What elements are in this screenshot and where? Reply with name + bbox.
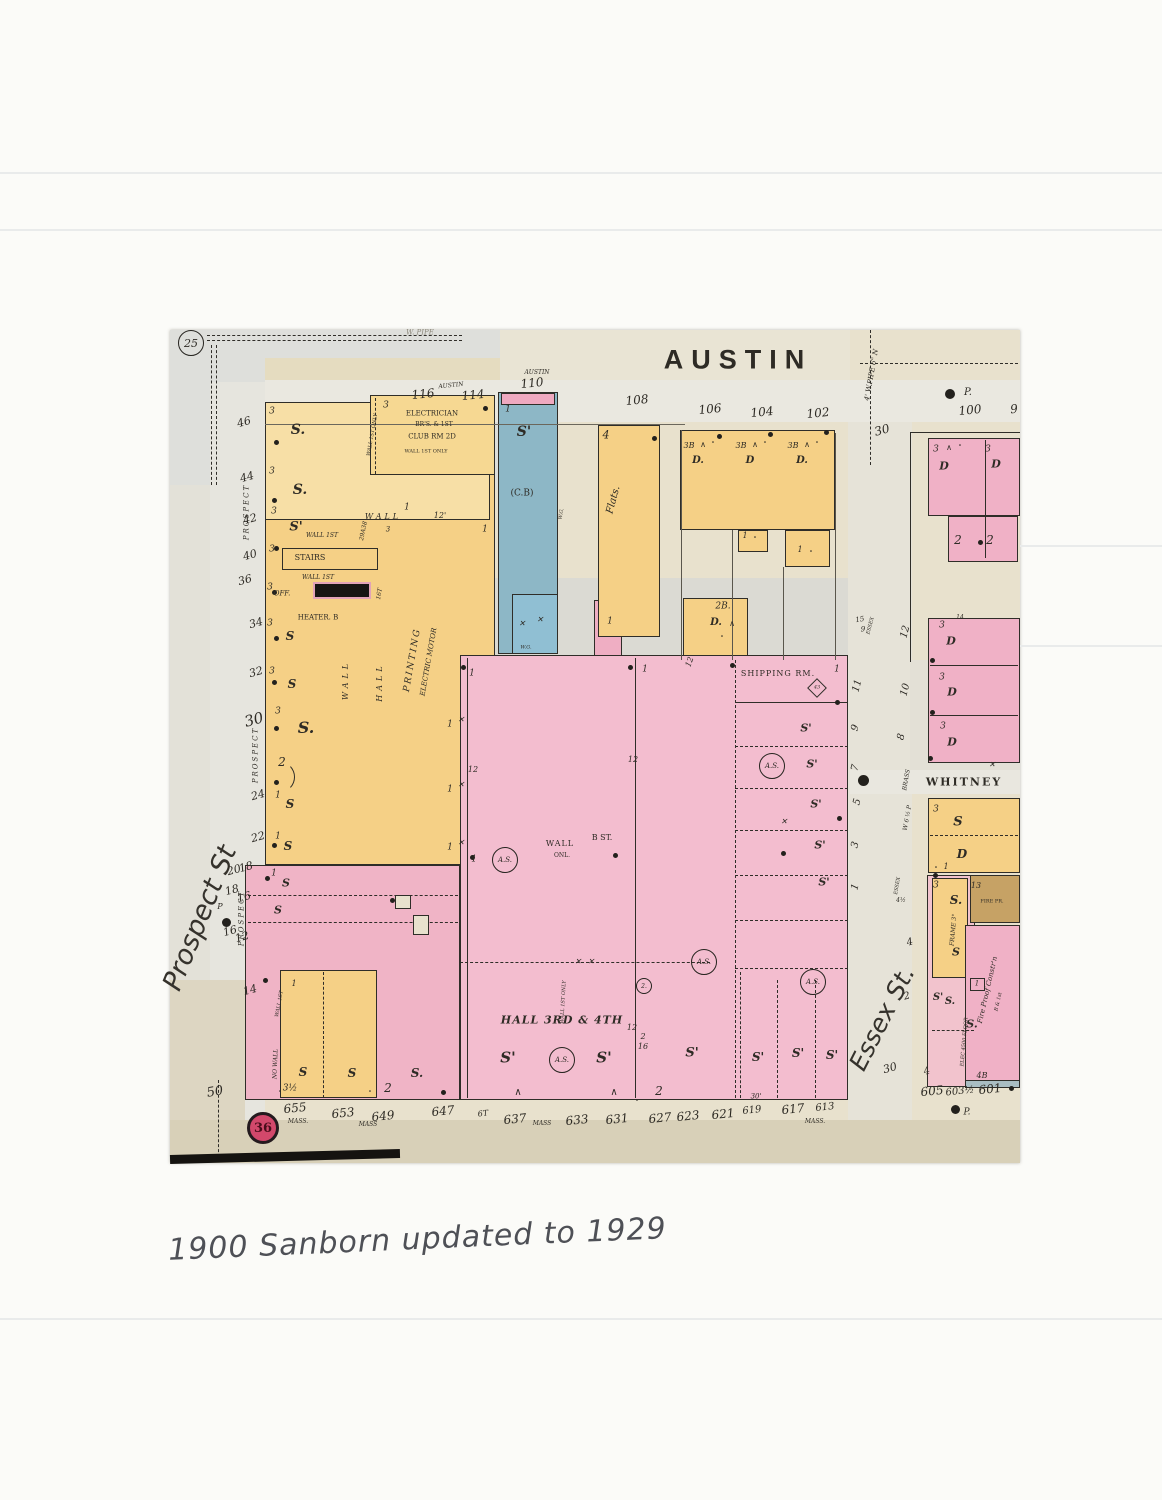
map-label: S. xyxy=(411,1067,423,1079)
map-label: 2 xyxy=(954,534,962,546)
map-label: ∘ xyxy=(959,443,962,449)
map-label: 3 xyxy=(939,674,945,683)
map-label: ∘ xyxy=(369,1089,372,1095)
map-label: 3 xyxy=(939,622,945,631)
map-label: 14 xyxy=(956,615,964,621)
scan-artifact-line xyxy=(1020,545,1162,547)
map-label: 43 xyxy=(814,686,820,691)
map-label: ∧ xyxy=(514,1088,521,1098)
map-label: 3B xyxy=(788,442,799,450)
map-label: PROSPECT xyxy=(253,727,260,783)
map-label: S. xyxy=(293,483,308,497)
map-label: ONL. xyxy=(554,853,570,859)
wall-line xyxy=(930,835,1018,836)
map-label: S' xyxy=(500,1051,515,1066)
wall-line xyxy=(740,972,741,1098)
map-label: 13 xyxy=(971,882,981,890)
map-label: 44 xyxy=(239,470,255,484)
map-label: 2 xyxy=(655,1085,663,1097)
map-label: 627 xyxy=(648,1111,672,1125)
wall-line xyxy=(207,340,462,341)
map-label: ∘ xyxy=(712,440,715,446)
building xyxy=(598,425,660,637)
map-label: WALL 1ST ONLY xyxy=(404,450,447,455)
map-label: 22 xyxy=(250,830,266,844)
utility-dot xyxy=(978,540,983,545)
map-label: 3 xyxy=(985,446,991,455)
map-label: ✕ xyxy=(989,761,996,769)
wall-line xyxy=(735,920,848,921)
sheet-number-25: 25 xyxy=(178,330,204,356)
map-label: 32 xyxy=(248,665,264,679)
map-label: S xyxy=(288,678,297,690)
wall-line xyxy=(815,980,816,1098)
map-label: S' xyxy=(818,877,829,888)
utility-dot xyxy=(272,843,277,848)
utility-dot xyxy=(628,665,633,670)
map-detail xyxy=(413,915,429,935)
map-label: 1 xyxy=(447,844,453,853)
utility-dot xyxy=(265,876,270,881)
map-label: 3 xyxy=(933,806,939,815)
map-label: ∧ xyxy=(610,1088,617,1098)
wall-line xyxy=(635,658,636,1098)
map-label: 116 xyxy=(411,387,435,401)
wall-line xyxy=(860,363,1018,364)
map-label: 4B xyxy=(977,1072,988,1080)
wall-line xyxy=(735,746,848,747)
utility-dot xyxy=(837,816,842,821)
map-label: D. xyxy=(796,456,808,466)
map-label: D xyxy=(939,461,949,472)
map-label: 655 xyxy=(283,1101,307,1115)
utility-dot xyxy=(768,432,773,437)
utility-dot xyxy=(945,389,955,399)
map-label: 34 xyxy=(248,616,264,630)
map-label: D xyxy=(746,456,755,466)
map-label: S' xyxy=(814,840,825,851)
as-annotation: A.S. xyxy=(492,847,518,873)
map-label: 108 xyxy=(625,393,649,407)
map-label: 100 xyxy=(958,403,982,417)
map-label: 2 xyxy=(986,534,994,546)
map-label: S. xyxy=(298,720,315,736)
map-label: S' xyxy=(685,1047,698,1060)
map-label: NO WALL xyxy=(272,1049,279,1079)
map-label: S' xyxy=(792,1047,804,1059)
map-label: ∘ xyxy=(636,1098,639,1104)
utility-dot xyxy=(274,726,279,731)
as-annotation: A.S. xyxy=(549,1047,575,1073)
map-label: 18 xyxy=(238,860,254,874)
map-label: B ST. xyxy=(592,834,613,842)
utility-dot xyxy=(1009,1086,1014,1091)
map-label: WALL xyxy=(342,660,350,700)
map-label: 1 xyxy=(642,666,648,675)
scan-artifact-line xyxy=(0,172,1162,174)
utility-dot xyxy=(272,680,277,685)
map-label: CLUB RM 2D xyxy=(408,434,456,441)
map-label: 16 xyxy=(638,1043,648,1051)
map-label: ∘ xyxy=(816,440,819,446)
map-label: 619 xyxy=(742,1105,762,1117)
map-label: ✕ xyxy=(458,781,465,789)
map-label: ✕ xyxy=(519,620,526,628)
map-label: S xyxy=(299,1066,308,1078)
map-label: D. xyxy=(692,456,704,466)
map-label: 30 xyxy=(873,422,891,438)
map-label: HALL xyxy=(376,662,384,701)
map-label: 3 xyxy=(269,468,275,477)
map-label: 3 xyxy=(269,668,275,677)
map-label: S. xyxy=(945,997,955,1007)
map-label: 1 xyxy=(447,786,453,795)
map-label: 36 xyxy=(237,573,253,587)
map-label: 2 xyxy=(278,756,286,768)
map-label: 631 xyxy=(605,1112,629,1126)
map-label: 1 xyxy=(975,981,979,988)
map-label: ∧ xyxy=(700,441,706,449)
map-label: W.G. xyxy=(520,646,531,651)
map-label: WALL 1ST xyxy=(306,533,338,539)
map-label: 6T xyxy=(477,1109,488,1118)
map-label: S xyxy=(286,630,295,642)
utility-dot xyxy=(461,665,466,670)
map-label: S xyxy=(952,947,960,958)
shipping-room-label: SHIPPING RM. xyxy=(741,670,815,678)
map-label: 3 xyxy=(275,708,281,717)
map-label: 4 xyxy=(603,430,610,441)
wall-line xyxy=(467,658,468,1098)
whitney-street-label: WHITNEY xyxy=(926,777,1002,788)
map-label: 1 xyxy=(469,670,475,679)
map-label: D xyxy=(991,459,1001,470)
building xyxy=(501,393,555,405)
map-label: W. PIPE xyxy=(406,330,434,337)
map-label: ∘ xyxy=(935,865,938,871)
map-label: D xyxy=(947,687,957,698)
map-label: 3 xyxy=(267,584,273,593)
map-label: ∧ xyxy=(729,620,735,628)
utility-dot xyxy=(951,1105,960,1114)
map-label: 1 xyxy=(742,532,747,540)
wall-line xyxy=(732,530,733,660)
utility-dot xyxy=(930,710,935,715)
scanned-page: AUSTINWHITNEYProspect StEssex St.PROSPEC… xyxy=(0,0,1162,1500)
map-label: 102 xyxy=(806,406,830,420)
map-label: MASS xyxy=(533,1121,552,1127)
map-label: HEATER. B xyxy=(298,615,339,622)
map-label: 30 xyxy=(882,1061,898,1075)
map-label: 3 xyxy=(933,882,939,891)
utility-dot xyxy=(730,663,735,668)
map-label: S' xyxy=(806,759,817,770)
map-label: 1 xyxy=(291,980,296,988)
building xyxy=(928,438,1020,516)
circled-2: 2. xyxy=(636,978,652,994)
utility-dot xyxy=(441,1090,446,1095)
map-label: ✕ xyxy=(588,958,595,966)
index-badge-36: 36 xyxy=(247,1112,279,1144)
map-label: MASS. xyxy=(288,1119,308,1125)
wall-line xyxy=(777,980,778,1098)
utility-dot xyxy=(272,498,277,503)
map-label: 1 xyxy=(447,721,453,730)
map-label: D xyxy=(957,848,967,860)
map-label: 12 xyxy=(468,766,478,774)
map-label: 40 xyxy=(242,548,258,562)
map-label: S' xyxy=(800,723,811,734)
wall-line xyxy=(735,702,848,703)
map-label: 3 xyxy=(267,620,273,629)
map-detail xyxy=(395,895,411,909)
map-label: S xyxy=(282,878,290,889)
map-label: 3½ xyxy=(283,1085,297,1094)
utility-dot xyxy=(835,700,840,705)
utility-dot xyxy=(274,440,279,445)
austin-street-label: AUSTIN xyxy=(664,347,813,374)
map-label: 621 xyxy=(711,1107,735,1121)
scan-artifact-line xyxy=(1020,645,1162,647)
map-label: BR'S. & 1ST xyxy=(415,422,452,428)
map-label: S' xyxy=(933,993,943,1003)
map-label: 1 xyxy=(482,526,488,535)
map-label: ELECTRICIAN xyxy=(406,411,458,418)
map-label: 3 xyxy=(269,408,275,417)
scan-artifact-line xyxy=(0,1318,1162,1320)
map-label: D xyxy=(947,737,957,748)
map-label: 46 xyxy=(236,415,252,429)
map-label: 30' xyxy=(751,1094,762,1101)
map-label: S xyxy=(274,905,282,916)
map-label: S xyxy=(953,816,962,829)
map-label: S xyxy=(286,798,295,810)
wall-line xyxy=(783,567,784,660)
wall-line xyxy=(681,430,682,660)
map-label: ∘ xyxy=(754,535,757,541)
wall-line xyxy=(930,665,1018,666)
wall-line xyxy=(248,895,458,896)
utility-dot xyxy=(263,978,268,983)
wall-line xyxy=(216,345,217,485)
map-label: ✕ xyxy=(458,839,465,847)
map-label: FIRE PR. xyxy=(980,900,1003,905)
wall-line xyxy=(735,875,848,876)
map-label: ∧ xyxy=(804,441,810,449)
map-label: 16 xyxy=(236,890,252,904)
map-label: 1 xyxy=(275,792,281,801)
map-label: 14 xyxy=(242,983,258,997)
map-label: P xyxy=(217,903,222,911)
wall-line xyxy=(910,432,1020,433)
wall-line xyxy=(930,715,1018,716)
map-label: 653 xyxy=(331,1106,355,1120)
map-label: 649 xyxy=(371,1109,395,1123)
map-label: ∘ xyxy=(764,440,767,446)
map-label: S' xyxy=(596,1051,611,1066)
map-label: P. xyxy=(963,1109,970,1118)
map-label: 12 xyxy=(627,1024,637,1032)
map-label: 3 xyxy=(940,723,946,732)
map-label: ∘ xyxy=(810,549,813,555)
map-label: ∘ xyxy=(279,1089,282,1095)
map-label: 2 xyxy=(640,1033,645,1041)
map-label: 1 xyxy=(404,504,410,513)
map-label: 12 xyxy=(234,930,250,944)
map-label: ∧ xyxy=(752,441,758,449)
map-label: STAIRS xyxy=(295,554,326,562)
map-label: 24 xyxy=(250,788,266,802)
map-label: S' xyxy=(289,521,302,534)
wall-line xyxy=(735,660,736,1098)
scan-artifact-line xyxy=(0,229,1162,231)
map-label: P. xyxy=(964,388,972,398)
map-label: 110 xyxy=(520,376,544,390)
map-label: ✕ xyxy=(575,958,582,966)
map-label: 623 xyxy=(676,1109,700,1123)
map-label: 3B xyxy=(684,442,695,450)
as-annotation: A.S. xyxy=(691,949,717,975)
map-label: S' xyxy=(810,799,821,810)
map-label: 9 xyxy=(1010,403,1019,416)
map-label: 1 xyxy=(271,870,277,879)
utility-dot xyxy=(717,434,722,439)
wall-line xyxy=(835,433,836,660)
map-label: 4½ xyxy=(896,898,906,904)
map-label: MASS. xyxy=(805,1119,825,1125)
map-label: ∧ xyxy=(946,444,952,452)
map-label: OFF. xyxy=(274,591,291,598)
building xyxy=(460,655,848,1100)
map-label: 1 xyxy=(797,546,802,554)
map-label: WALL 1ST xyxy=(302,575,334,581)
map-label: 617 xyxy=(781,1102,805,1116)
utility-dot xyxy=(274,780,279,785)
utility-dot xyxy=(930,658,935,663)
as-annotation: A.S. xyxy=(759,753,785,779)
building xyxy=(928,618,1020,763)
utility-dot xyxy=(613,853,618,858)
map-label: ✕ xyxy=(458,716,465,724)
map-label: 106 xyxy=(698,402,722,416)
map-label: 613 xyxy=(815,1102,835,1114)
wall-line xyxy=(735,788,848,789)
wall-line xyxy=(211,345,212,485)
map-label: S xyxy=(348,1067,357,1079)
map-label: WALL xyxy=(546,840,574,848)
map-label: 42 xyxy=(242,512,258,526)
utility-dot xyxy=(858,775,869,786)
wall-line xyxy=(735,968,848,969)
map-label: 1 xyxy=(943,863,948,871)
map-label: S' xyxy=(826,1049,838,1061)
utility-dot xyxy=(390,898,395,903)
map-label: S xyxy=(284,840,293,852)
wall-line xyxy=(265,424,685,425)
map-label: 50 xyxy=(206,1084,225,1100)
utility-dot xyxy=(781,851,786,856)
map-label: 3 xyxy=(271,508,277,517)
map-label: S. xyxy=(291,423,306,437)
map-label: S' xyxy=(752,1051,764,1063)
map-label: 3B xyxy=(736,442,747,450)
map-label: 3 xyxy=(933,446,939,455)
utility-dot xyxy=(933,873,938,878)
map-label: ✕ xyxy=(537,616,544,624)
wall-line xyxy=(323,972,324,1098)
map-label: 1 xyxy=(505,406,511,415)
wall-line xyxy=(460,962,710,963)
map-label: 3 xyxy=(269,546,275,555)
map-label: D. xyxy=(710,618,722,628)
map-label: 12' xyxy=(434,512,446,520)
utility-dot xyxy=(824,430,829,435)
wall-line xyxy=(735,830,848,831)
utility-dot xyxy=(483,406,488,411)
map-label: 647 xyxy=(431,1104,455,1118)
map-label: S. xyxy=(950,894,962,906)
utility-dot xyxy=(928,756,933,761)
utility-dot xyxy=(652,436,657,441)
map-detail xyxy=(313,582,371,599)
building xyxy=(965,925,1020,1083)
map-label: 601 xyxy=(978,1082,1002,1096)
map-label: ∘ xyxy=(721,634,724,640)
map-label: 2B. xyxy=(715,603,730,612)
map-label: 1 xyxy=(607,618,613,627)
map-label: 605 xyxy=(920,1084,944,1098)
map-label: 637 xyxy=(503,1112,527,1126)
map-label: 2 xyxy=(384,1082,392,1094)
map-label: 3 xyxy=(386,527,390,534)
map-label: ✕ xyxy=(781,818,788,826)
map-label: 1 xyxy=(275,833,281,842)
map-label: S' xyxy=(517,425,531,439)
building xyxy=(785,530,830,567)
map-label: 114 xyxy=(461,388,485,402)
map-label: 633 xyxy=(565,1113,589,1127)
wall-line xyxy=(928,438,1020,439)
map-label: 104 xyxy=(750,405,774,419)
as-annotation: A.S. xyxy=(800,969,826,995)
map-label: 12 xyxy=(628,756,638,764)
building xyxy=(280,970,377,1098)
sanborn-map: AUSTINWHITNEYProspect StEssex St.PROSPEC… xyxy=(170,330,1020,1163)
map-label: 1 xyxy=(834,666,840,675)
map-label: 3 xyxy=(383,402,389,411)
map-label: WALL xyxy=(365,513,401,521)
caption-handwriting: 1900 Sanborn updated to 1929 xyxy=(167,1211,667,1268)
map-label: 1 xyxy=(471,856,477,865)
map-label: (C.B) xyxy=(510,490,533,499)
map-label: D xyxy=(946,636,956,647)
utility-dot xyxy=(274,636,279,641)
